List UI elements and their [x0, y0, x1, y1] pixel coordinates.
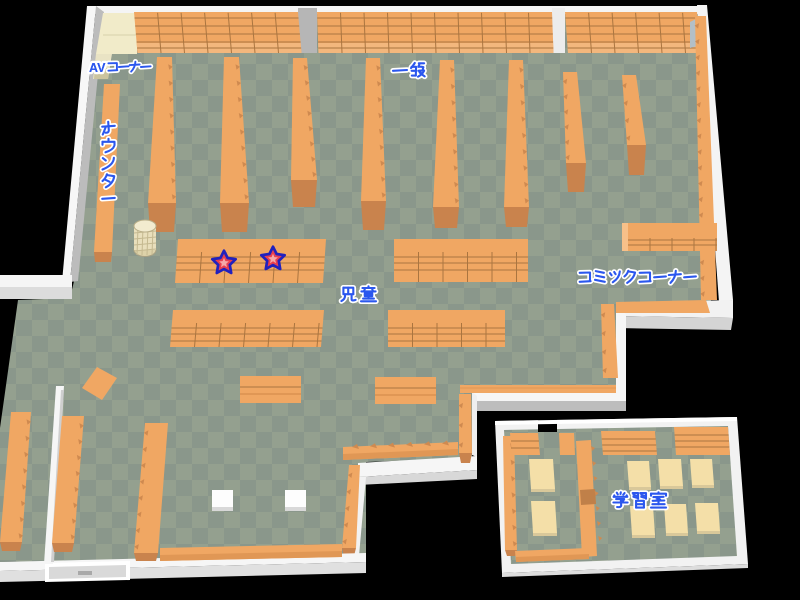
svg-text:AV: AV	[89, 61, 106, 75]
